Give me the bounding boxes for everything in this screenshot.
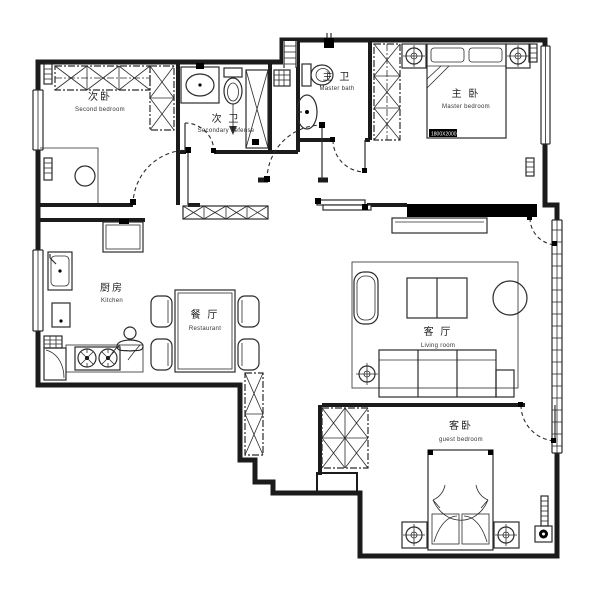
radiator-bedroom-left	[44, 158, 52, 180]
label-second-bedroom-zh: 次卧	[88, 90, 112, 103]
label-dining-zh: 餐 厅	[191, 308, 220, 321]
window-shaft	[283, 40, 297, 68]
label-living-en: Living room	[421, 343, 455, 349]
bed-size-label: 1800X2000	[431, 132, 457, 138]
label-guest-bedroom-en: guest bedroom	[439, 437, 483, 443]
label-kitchen-zh: 厨房	[100, 281, 124, 294]
label-secondary-bath-zh: 次 卫	[212, 112, 241, 125]
wardrobe-guest-bedroom	[322, 408, 368, 468]
label-second-bedroom-en: Second bedroom	[75, 107, 125, 113]
sliding-door-track	[315, 198, 371, 210]
shower-head-icon	[324, 33, 334, 48]
label-master-bath-en: Master bath	[320, 86, 355, 92]
radiator-bedroom-top	[44, 64, 52, 84]
label-living-zh: 客 厅	[424, 325, 453, 338]
faucet-icon	[196, 63, 204, 69]
label-guest-bedroom-zh: 客卧	[449, 419, 473, 432]
floor-plan: 1800X2000	[0, 0, 600, 600]
floor-plan-drawing: 1800X2000	[0, 0, 600, 600]
window-kitchen	[31, 250, 45, 331]
label-dining-en: Restaurant	[189, 326, 221, 332]
label-secondary-bath-en: Secondary defense	[198, 128, 255, 134]
window-living-guest	[550, 220, 564, 453]
window-master-bedroom	[539, 46, 551, 144]
floor-drain	[274, 70, 290, 86]
tv-wall	[407, 204, 537, 217]
label-master-bedroom-en: Master bedroom	[442, 104, 490, 110]
window-second-bedroom	[31, 90, 45, 150]
label-kitchen-en: Kitchen	[101, 298, 123, 304]
vent-grid	[44, 336, 62, 348]
radiator-hall-right	[526, 158, 534, 176]
label-master-bath-zh: 主 卫	[323, 71, 352, 83]
label-master-bedroom-zh: 主 卧	[452, 87, 481, 100]
